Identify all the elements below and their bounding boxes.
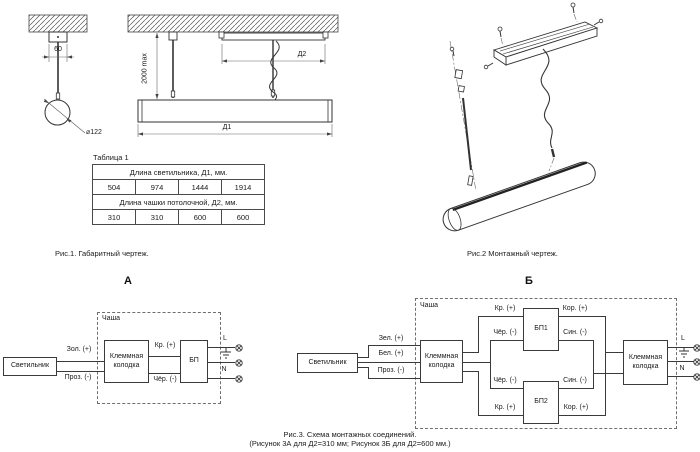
wire-segment — [368, 378, 420, 379]
cable-nut — [458, 86, 464, 92]
terminal-block-box-b1: Клеммная колодка — [420, 340, 463, 383]
line-l-label-b: L — [676, 335, 690, 343]
wire-label-red: Кр. (+) — [150, 342, 180, 350]
wire-segment — [593, 373, 623, 374]
table-cell: 600 — [179, 210, 222, 225]
line-n-label-a: N — [217, 366, 231, 374]
cup-label-a: Чаша — [102, 315, 120, 323]
wire-segment — [358, 362, 420, 363]
diameter-label: ⌀122 — [86, 129, 102, 137]
fig3-caption-line1: Рис.3. Схема монтажных соединений. — [0, 430, 700, 439]
terminal-icon — [693, 358, 700, 366]
suspension-cable — [463, 98, 471, 170]
terminal-block-box-b2: Клеммная колодка — [623, 340, 668, 385]
wire-label-transparent: Проз. (-) — [58, 374, 98, 382]
earth-ground-icon — [220, 348, 232, 359]
terminal-icon — [235, 359, 243, 367]
wire-gripper — [56, 93, 59, 99]
height-2000-label: 2000 max — [142, 49, 151, 89]
table-header-d1: Длина светильника, Д1, мм. — [93, 165, 265, 180]
wire-segment — [559, 415, 605, 416]
cup-end-tab — [323, 32, 328, 38]
wire-segment — [149, 356, 180, 357]
wire-label-blue: Син. (-) — [559, 377, 591, 385]
wire-segment — [559, 340, 593, 341]
wire-segment — [605, 316, 606, 416]
wire-label-red: Кр. (+) — [490, 305, 520, 313]
cable-gripper — [455, 70, 463, 79]
wire-segment — [57, 371, 104, 372]
terminal-icon — [235, 344, 243, 352]
wire-segment — [478, 316, 523, 317]
wire-segment — [463, 362, 490, 363]
psu2-box: БП2 — [523, 381, 559, 424]
wire-label-brown: Кор. (+) — [560, 404, 592, 412]
table-cell: 310 — [136, 210, 179, 225]
wire-segment — [149, 373, 180, 374]
wire-segment — [368, 345, 420, 346]
luminaire-body — [138, 100, 332, 122]
fig1-front-view — [128, 15, 338, 137]
wire-label-red: Кр. (+) — [490, 404, 520, 412]
diameter-leader — [44, 99, 85, 133]
wire-label-transparent: Проз. (-) — [370, 367, 412, 375]
screw — [571, 3, 577, 22]
fig2-caption: Рис.2 Монтажный чертеж. — [467, 249, 558, 258]
line-n-label-b: N — [675, 365, 689, 373]
table-cell: 1914 — [222, 180, 265, 195]
wire-label-black: Чёр. (-) — [489, 329, 521, 337]
table-cell: 310 — [93, 210, 136, 225]
wire-segment — [368, 345, 369, 358]
wire-segment — [559, 316, 605, 317]
wire-segment — [490, 340, 523, 341]
diagram-b-title: Б — [521, 275, 537, 287]
wire-segment — [478, 415, 523, 416]
ceiling-section — [128, 15, 338, 32]
screw — [498, 27, 503, 46]
wire-segment — [208, 378, 235, 379]
table-row: 310 310 600 600 — [93, 210, 265, 225]
fig2-exploded-view — [440, 3, 603, 234]
terminal-block-box-a: Клеммная колодка — [104, 340, 149, 383]
wire-label-green: Зел. (+) — [371, 335, 411, 343]
fig3-caption-line2: (Рисунок 3А для Д2=310 мм; Рисунок 3Б дл… — [0, 439, 700, 448]
ceiling-section — [29, 15, 87, 32]
wire-label-brown: Кор. (+) — [559, 305, 591, 313]
table-title: Таблица 1 — [93, 153, 129, 162]
terminal-icon — [693, 344, 700, 352]
line-l-label-a: L — [218, 335, 232, 343]
table-cell: 974 — [136, 180, 179, 195]
cable-end-fitting — [468, 176, 474, 186]
wire-segment — [57, 361, 104, 362]
cup-label-b: Чаша — [420, 302, 438, 310]
table-cell: 1444 — [179, 180, 222, 195]
d2-label: Д2 — [292, 51, 312, 59]
wire-label-black: Чёр. (-) — [489, 377, 521, 385]
document-page: 60 ⌀122 2000 max Д2 Д1 Таблица 1 Длина с… — [0, 0, 700, 452]
wire-segment — [559, 388, 593, 389]
psu-box-a: БП — [180, 340, 208, 383]
wire-segment — [668, 361, 694, 362]
bracket-hole — [57, 36, 59, 38]
wire-segment — [593, 340, 594, 389]
diagram-a-title: А — [120, 275, 136, 287]
wire-segment — [478, 316, 479, 353]
ceiling-mount — [169, 32, 177, 40]
table-cell: 600 — [222, 210, 265, 225]
cup-end-tab — [219, 32, 224, 38]
wire-segment — [668, 376, 694, 377]
terminal-icon — [235, 375, 243, 383]
wire-segment — [605, 352, 623, 353]
d1-label: Д1 — [217, 124, 237, 132]
dim-60-label: 60 — [48, 46, 68, 54]
wire-segment — [208, 362, 235, 363]
fig1-side-view — [29, 15, 87, 133]
cord-connector — [552, 149, 554, 157]
luminaire-tube — [440, 159, 599, 234]
luminaire-box-b: Светильник — [297, 353, 358, 373]
power-cord — [541, 49, 552, 148]
wire-label-white: Бел. (+) — [371, 350, 411, 358]
wire-segment — [463, 352, 478, 353]
fig1-caption: Рис.1. Габаритный чертеж. — [55, 249, 149, 258]
wire-label-blue: Син. (-) — [559, 329, 591, 337]
screw — [484, 63, 493, 69]
table-cell: 504 — [93, 180, 136, 195]
assembly-axis — [450, 41, 476, 191]
luminaire-end-view — [45, 100, 70, 125]
wire-segment — [490, 388, 523, 389]
table-header-d2: Длина чашки потолочной, Д2, мм. — [93, 195, 265, 210]
dimensions-table: Длина светильника, Д1, мм. 504 974 1444 … — [92, 164, 265, 225]
luminaire-box-a: Светильник — [3, 357, 57, 376]
wire-segment — [463, 371, 478, 372]
wire-label-black: Чёр. (-) — [149, 376, 181, 384]
wire-label-gold: Зол. (+) — [60, 346, 98, 354]
ceiling-cup — [222, 33, 325, 40]
psu1-box: БП1 — [523, 308, 559, 351]
screw — [594, 19, 603, 25]
earth-ground-icon — [678, 347, 690, 358]
terminal-icon — [693, 373, 700, 381]
wire-gripper — [171, 91, 174, 97]
wire-segment — [478, 371, 479, 416]
table-row: 504 974 1444 1914 — [93, 180, 265, 195]
